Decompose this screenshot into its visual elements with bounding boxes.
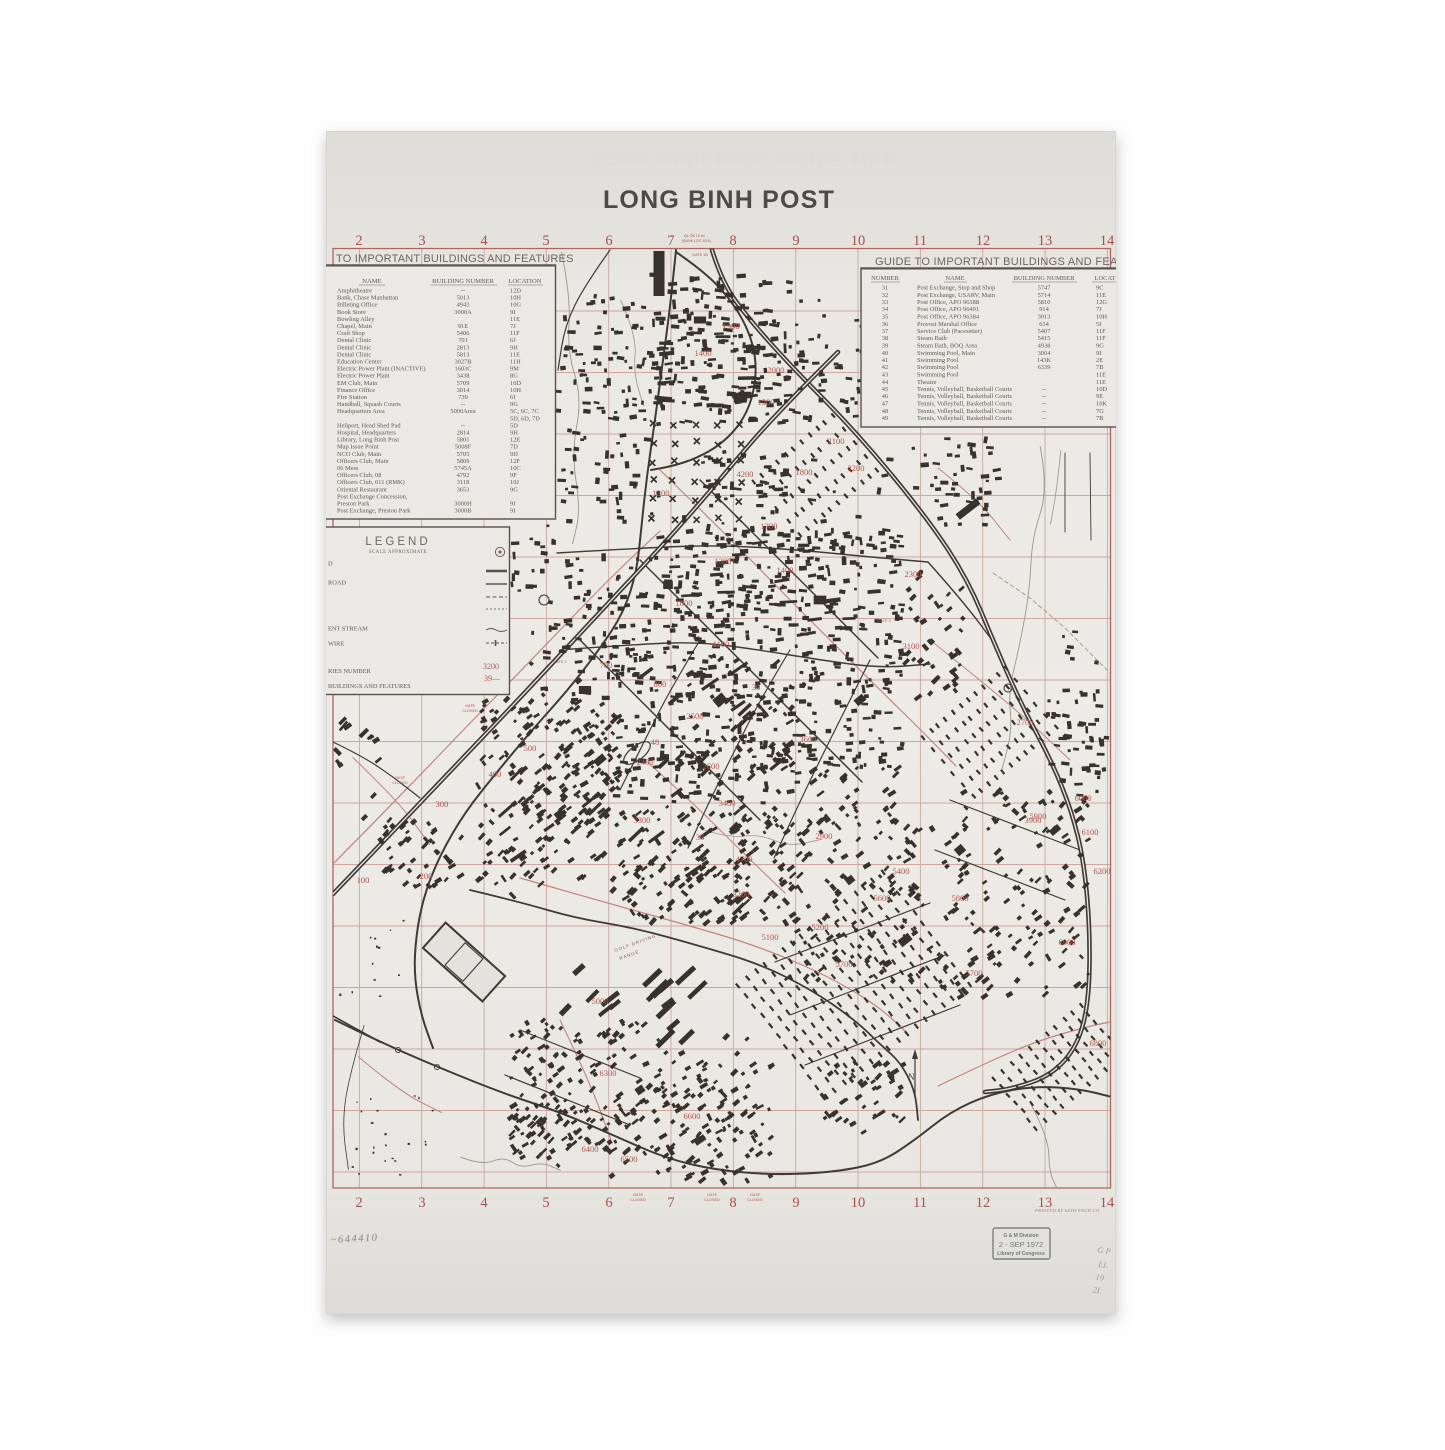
svg-text:11E: 11E	[1096, 379, 1106, 386]
svg-text:34: 34	[882, 306, 889, 313]
svg-text:PRINTED BY 66TH ENGR CO: PRINTED BY 66TH ENGR CO	[1034, 1208, 1100, 1213]
svg-text:GATE: GATE	[395, 776, 406, 780]
svg-text:45: 45	[882, 386, 888, 393]
svg-text:10H: 10H	[1096, 314, 1107, 321]
svg-text:TO IMPORTANT BUILDINGS AND FEA: TO IMPORTANT BUILDINGS AND FEATURES	[336, 253, 574, 265]
svg-text:11: 11	[913, 233, 927, 249]
svg-text:8G: 8G	[510, 373, 518, 380]
svg-text:1603C: 1603C	[454, 366, 471, 373]
svg-text:1400: 1400	[777, 565, 794, 575]
svg-text:(BUNK LOC 63 A): (BUNK LOC 63 A)	[682, 239, 711, 243]
svg-text:9: 9	[792, 1195, 799, 1211]
svg-text:Tennis, Volleyball, Basketball: Tennis, Volleyball, Basketball Courts	[917, 386, 1013, 393]
svg-text:RIES NUMBER: RIES NUMBER	[328, 668, 372, 675]
svg-text:SCALE APPROXIMATE: SCALE APPROXIMATE	[369, 550, 427, 555]
svg-text:06 Mess: 06 Mess	[337, 465, 359, 472]
svg-text:GUIDE TO IMPORTANT BUILDINGS A: GUIDE TO IMPORTANT BUILDINGS AND FEATURE…	[875, 256, 1156, 268]
svg-text:Electric Power Plant: Electric Power Plant	[337, 373, 390, 380]
svg-text:LOCATION: LOCATION	[509, 278, 542, 285]
svg-text:BUILDINGS AND FEATURES: BUILDINGS AND FEATURES	[328, 683, 411, 690]
svg-text:--: --	[1042, 393, 1046, 400]
svg-text:--: --	[1042, 386, 1046, 393]
svg-text:42: 42	[882, 364, 888, 371]
svg-text:5813: 5813	[457, 351, 470, 358]
svg-text:Dental Clinic: Dental Clinic	[337, 337, 371, 344]
svg-text:5100: 5100	[762, 932, 779, 942]
svg-text:6: 6	[605, 233, 612, 249]
svg-text:4: 4	[480, 1195, 488, 1211]
svg-text:634: 634	[1039, 321, 1049, 328]
svg-text:5415: 5415	[1038, 335, 1051, 342]
svg-text:Post Exchange, USARV, Main: Post Exchange, USARV, Main	[917, 292, 996, 299]
svg-text:LOCAT: LOCAT	[1095, 275, 1116, 282]
svg-text:3000H: 3000H	[454, 501, 472, 508]
svg-text:2813: 2813	[457, 344, 470, 351]
svg-text:BUILDING NUMBER: BUILDING NUMBER	[1014, 275, 1076, 282]
svg-text:Map Issue Point: Map Issue Point	[337, 444, 379, 451]
svg-text:Officers Club, 08: Officers Club, 08	[337, 472, 381, 479]
svg-text:33: 33	[882, 299, 888, 306]
svg-text:7J: 7J	[1096, 306, 1102, 313]
svg-text:2E: 2E	[1096, 357, 1103, 364]
svg-text:9: 9	[792, 233, 799, 249]
svg-text:2400: 2400	[637, 757, 654, 767]
svg-text:Officers Club, Main: Officers Club, Main	[337, 458, 389, 465]
svg-text:5407: 5407	[1038, 328, 1052, 335]
svg-text:GATE: GATE	[633, 1193, 644, 1197]
svg-text:4938: 4938	[1038, 343, 1051, 350]
svg-text:4200: 4200	[737, 469, 754, 479]
svg-text:10D: 10D	[510, 380, 521, 387]
svg-text:2300: 2300	[905, 569, 922, 579]
svg-text:3004: 3004	[1038, 350, 1052, 357]
svg-text:2500: 2500	[687, 711, 704, 721]
svg-text:13: 13	[1038, 233, 1053, 249]
svg-text:36: 36	[882, 321, 888, 328]
svg-text:3200: 3200	[733, 889, 750, 899]
svg-text:8: 8	[729, 1195, 736, 1211]
svg-text:44: 44	[882, 379, 889, 386]
svg-text:3600: 3600	[800, 734, 817, 744]
svg-text:6300: 6300	[600, 1068, 617, 1078]
svg-text:GATE: GATE	[750, 1193, 761, 1197]
svg-text:6339: 6339	[1038, 364, 1051, 371]
svg-text:3027B: 3027B	[454, 359, 471, 366]
svg-text:40: 40	[882, 350, 888, 357]
svg-text:9D: 9D	[510, 451, 518, 458]
svg-text:2200: 2200	[848, 463, 865, 473]
svg-text:1000: 1000	[676, 598, 693, 608]
svg-text:2000: 2000	[768, 365, 785, 375]
svg-text:Tennis, Volleyball, Basketball: Tennis, Volleyball, Basketball Courts	[917, 415, 1013, 422]
svg-text:3014: 3014	[457, 387, 471, 394]
svg-text:38: 38	[882, 335, 888, 342]
svg-text:2700: 2700	[1017, 717, 1034, 727]
svg-text:QL OK 10 mi: QL OK 10 mi	[684, 234, 705, 238]
svg-text:11F: 11F	[1096, 335, 1106, 342]
svg-text:4792: 4792	[457, 472, 470, 479]
svg-text:5800: 5800	[952, 893, 969, 903]
svg-text:Electric Power Plant (INACTIVE: Electric Power Plant (INACTIVE)	[337, 366, 426, 373]
svg-text:Bank, Chase Manhattan: Bank, Chase Manhattan	[337, 295, 399, 302]
svg-text:9I: 9I	[510, 501, 515, 508]
svg-text:Theatre: Theatre	[917, 379, 937, 386]
svg-text:9M: 9M	[510, 366, 519, 373]
svg-text:6J: 6J	[510, 337, 516, 344]
svg-text:31: 31	[882, 285, 888, 292]
svg-text:9H: 9H	[510, 344, 518, 351]
svg-text:9I: 9I	[510, 508, 515, 515]
svg-text:Billeting Office: Billeting Office	[337, 302, 377, 309]
svg-text:5714: 5714	[1038, 292, 1052, 299]
svg-text:143K: 143K	[1037, 357, 1052, 364]
svg-text:7B: 7B	[1096, 415, 1103, 422]
svg-text:BUILDING NUMBER: BUILDING NUMBER	[432, 278, 494, 285]
svg-text:CLOSED: CLOSED	[630, 1198, 646, 1202]
svg-text:5700: 5700	[966, 968, 983, 978]
svg-text:2L: 2L	[1092, 1284, 1103, 1295]
svg-text:Post Exchange, Stop and Shop: Post Exchange, Stop and Shop	[917, 285, 995, 292]
svg-text:NCO Club, Main: NCO Club, Main	[337, 451, 382, 458]
svg-text:3013: 3013	[1038, 314, 1051, 321]
svg-text:9G: 9G	[510, 401, 518, 408]
svg-text:1300: 1300	[715, 556, 732, 566]
svg-text:EM Club, Main: EM Club, Main	[337, 380, 378, 387]
svg-text:11H: 11H	[510, 359, 521, 366]
svg-text:14: 14	[1100, 233, 1115, 249]
svg-text:Service Club (Pacesetter): Service Club (Pacesetter)	[917, 328, 982, 335]
svg-text:2814: 2814	[457, 430, 471, 437]
svg-text:Amphitheatre: Amphitheatre	[337, 288, 372, 295]
svg-text:6400: 6400	[582, 1144, 599, 1154]
svg-text:6I: 6I	[510, 394, 515, 401]
svg-text:LL: LL	[1097, 1259, 1109, 1270]
svg-text:Swimming Pool: Swimming Pool	[917, 364, 959, 371]
svg-text:11E: 11E	[1096, 372, 1106, 379]
svg-text:1800: 1800	[796, 467, 813, 477]
svg-text:6800: 6800	[1090, 1038, 1107, 1048]
svg-text:3000B: 3000B	[454, 508, 471, 515]
svg-text:5705: 5705	[457, 451, 470, 458]
svg-text:--: --	[461, 288, 465, 295]
svg-text:4: 4	[480, 233, 488, 249]
svg-text:9I: 9I	[1096, 350, 1101, 357]
svg-text:LONG BINH POST GUIDE MAP: LONG BINH POST GUIDE MAP	[593, 153, 898, 170]
svg-text:1100: 1100	[713, 639, 730, 649]
svg-text:5008F: 5008F	[455, 444, 472, 451]
svg-text:Swimming Pool, Main: Swimming Pool, Main	[917, 350, 976, 357]
svg-text:Post Office, APO 96388: Post Office, APO 96388	[917, 299, 979, 306]
svg-text:46: 46	[882, 393, 888, 400]
svg-text:NAME: NAME	[362, 278, 381, 285]
svg-text:3653: 3653	[457, 486, 470, 493]
svg-text:8: 8	[729, 233, 736, 249]
svg-text:ENT STREAM: ENT STREAM	[328, 626, 368, 633]
svg-text:5D: 5D	[510, 422, 518, 429]
svg-text:6: 6	[605, 1195, 612, 1211]
svg-text:Preston Park: Preston Park	[337, 501, 370, 508]
svg-text:10C: 10C	[510, 465, 521, 472]
svg-text:30: 30	[752, 682, 761, 692]
svg-text:2900: 2900	[816, 831, 833, 841]
svg-text:49: 49	[882, 415, 888, 422]
svg-text:Headquarters Area: Headquarters Area	[337, 408, 385, 415]
svg-text:48: 48	[651, 737, 660, 747]
svg-text:Post Office, APO 96491: Post Office, APO 96491	[917, 306, 979, 313]
svg-text:7G: 7G	[1096, 408, 1104, 415]
svg-text:G & M Division: G & M Division	[1003, 1233, 1038, 1239]
svg-text:6100: 6100	[1082, 827, 1099, 837]
svg-text:32: 32	[882, 292, 888, 299]
svg-text:10H: 10H	[510, 295, 521, 302]
svg-text:Tennis, Volleyball, Basketball: Tennis, Volleyball, Basketball Courts	[917, 408, 1013, 415]
svg-text:6000: 6000	[1075, 793, 1092, 803]
svg-text:914: 914	[1039, 306, 1049, 313]
svg-text:5700: 5700	[836, 959, 853, 969]
svg-text:3300: 3300	[634, 815, 651, 825]
svg-text:Craft Shop: Craft Shop	[337, 330, 365, 337]
svg-text:GATE 3: GATE 3	[877, 619, 890, 623]
svg-text:39: 39	[882, 343, 888, 350]
svg-text:12E: 12E	[510, 437, 520, 444]
svg-text:Hospital, Headquarters: Hospital, Headquarters	[337, 430, 396, 437]
svg-text:7J: 7J	[510, 323, 516, 330]
svg-text:G P: G P	[1097, 1245, 1112, 1257]
svg-text:11E: 11E	[510, 351, 520, 358]
svg-text:5: 5	[542, 1195, 549, 1211]
svg-text:NUMBER: NUMBER	[871, 275, 899, 282]
svg-text:Handball, Squash Courts: Handball, Squash Courts	[337, 401, 401, 408]
svg-text:5810: 5810	[1038, 299, 1051, 306]
svg-text:10G: 10G	[510, 302, 521, 309]
svg-text:7: 7	[667, 233, 674, 249]
svg-text:2600: 2600	[703, 761, 720, 771]
svg-text:--: --	[461, 401, 465, 408]
svg-text:9G: 9G	[510, 486, 518, 493]
svg-text:CLOSED: CLOSED	[392, 781, 408, 785]
svg-text:9G: 9G	[1096, 343, 1104, 350]
svg-text:4943: 4943	[457, 302, 470, 309]
svg-text:Swimming Pool: Swimming Pool	[917, 357, 959, 364]
svg-text:6200: 6200	[1094, 866, 1111, 876]
svg-text:7B: 7B	[1096, 364, 1103, 371]
svg-text:300: 300	[436, 799, 449, 809]
svg-text:3: 3	[418, 1195, 425, 1211]
svg-text:6500: 6500	[621, 1154, 638, 1164]
svg-text:5000Area: 5000Area	[450, 408, 475, 415]
svg-text:Oriental Restaurant: Oriental Restaurant	[337, 486, 387, 493]
svg-text:2100: 2100	[828, 436, 845, 446]
svg-text:1400: 1400	[695, 348, 712, 358]
svg-text:10D: 10D	[1096, 386, 1107, 393]
svg-text:1200: 1200	[653, 488, 670, 498]
svg-text:5747: 5747	[1038, 285, 1052, 292]
svg-text:5C, 6C, 7C: 5C, 6C, 7C	[510, 408, 539, 415]
svg-text:37: 37	[882, 328, 889, 335]
svg-text:3438: 3438	[457, 373, 470, 380]
svg-text:Book Store: Book Store	[337, 309, 366, 316]
svg-text:7: 7	[667, 1195, 674, 1211]
svg-text:Steam Bath, BOQ Area: Steam Bath, BOQ Area	[917, 343, 977, 350]
svg-text:3400: 3400	[719, 798, 736, 808]
svg-text:10J: 10J	[510, 479, 519, 486]
svg-text:GATE: GATE	[465, 704, 476, 708]
svg-text:1300: 1300	[761, 521, 778, 531]
svg-text:10: 10	[851, 1195, 866, 1211]
svg-text:3: 3	[418, 233, 425, 249]
svg-text:10: 10	[851, 233, 866, 249]
svg-text:5745A: 5745A	[454, 465, 472, 472]
svg-text:2: 2	[355, 1195, 362, 1211]
svg-text:Chapel, Main: Chapel, Main	[337, 323, 373, 330]
svg-text:100: 100	[357, 875, 370, 885]
svg-text:CLOSED: CLOSED	[747, 1198, 763, 1202]
svg-text:9I: 9I	[510, 309, 515, 316]
svg-text:3118: 3118	[457, 479, 470, 486]
svg-text:12: 12	[976, 233, 991, 249]
svg-text:LONG BINH POST: LONG BINH POST	[603, 186, 835, 214]
svg-text:GATE 1B: GATE 1B	[692, 253, 708, 257]
svg-text:700: 700	[600, 660, 613, 670]
svg-text:--: --	[1042, 408, 1046, 415]
svg-text:GATE: GATE	[707, 1193, 718, 1197]
svg-text:Post Exchange, Preston Park: Post Exchange, Preston Park	[337, 508, 411, 515]
svg-text:5406: 5406	[457, 330, 470, 337]
svg-text:9C: 9C	[1096, 285, 1103, 292]
svg-text:11E: 11E	[510, 316, 520, 323]
svg-text:4700: 4700	[736, 854, 753, 864]
svg-text:Tennis, Volleyball, Basketball: Tennis, Volleyball, Basketball Courts	[917, 393, 1013, 400]
svg-text:Dental Clinic: Dental Clinic	[337, 344, 371, 351]
svg-text:11E: 11E	[1096, 292, 1106, 299]
svg-text:9F: 9F	[510, 472, 517, 479]
svg-text:200: 200	[420, 871, 433, 881]
svg-text:--: --	[461, 422, 465, 429]
svg-text:D: D	[328, 561, 333, 568]
svg-text:2 - SEP 1972: 2 - SEP 1972	[999, 1240, 1043, 1249]
svg-text:48: 48	[882, 408, 888, 415]
svg-text:14: 14	[1100, 1195, 1115, 1211]
svg-text:500: 500	[524, 743, 537, 753]
svg-text:Steam Bath: Steam Bath	[917, 335, 947, 342]
svg-text:91E: 91E	[458, 323, 468, 330]
svg-text:5709: 5709	[457, 380, 470, 387]
svg-text:1900: 1900	[723, 321, 740, 331]
svg-text:12F: 12F	[510, 458, 520, 465]
svg-text:12: 12	[976, 1195, 991, 1211]
svg-text:5801: 5801	[457, 437, 470, 444]
svg-text:39—: 39—	[484, 674, 501, 683]
svg-text:7D: 7D	[510, 444, 518, 451]
svg-text:Library of Congress: Library of Congress	[997, 1251, 1045, 1257]
svg-text:LEGEND: LEGEND	[365, 536, 430, 548]
svg-text:WIRE: WIRE	[328, 641, 344, 648]
svg-text:739: 739	[458, 394, 468, 401]
svg-text:6900: 6900	[1059, 937, 1076, 947]
svg-text:NAME: NAME	[945, 275, 964, 282]
svg-text:Education Center: Education Center	[337, 359, 382, 366]
svg-text:--: --	[1042, 401, 1046, 408]
svg-text:ROAD: ROAD	[328, 580, 346, 587]
svg-text:35: 35	[882, 314, 888, 321]
svg-text:Bowling Alley: Bowling Alley	[337, 316, 375, 323]
svg-text:Heliport, Head Shed Pad: Heliport, Head Shed Pad	[337, 422, 401, 429]
svg-text:Finance Office: Finance Office	[337, 387, 375, 394]
svg-text:5400: 5400	[893, 866, 910, 876]
svg-text:6600: 6600	[684, 1111, 701, 1121]
svg-text:12D: 12D	[510, 288, 521, 295]
svg-text:10K: 10K	[1096, 401, 1107, 408]
svg-text:43: 43	[882, 372, 888, 379]
svg-text:3000A: 3000A	[454, 309, 472, 316]
svg-text:Post Office, APO 96384: Post Office, APO 96384	[917, 314, 980, 321]
svg-text:400: 400	[489, 769, 502, 779]
svg-text:9H: 9H	[510, 430, 518, 437]
svg-text:Post Exchange Concession,: Post Exchange Concession,	[337, 493, 408, 500]
svg-text:3200: 3200	[483, 662, 499, 671]
svg-text:CLOSED: CLOSED	[704, 1198, 720, 1202]
svg-text:Officers Club, 011 (RMK): Officers Club, 011 (RMK)	[337, 479, 405, 486]
svg-text:800: 800	[654, 679, 667, 689]
svg-text:701: 701	[458, 337, 468, 344]
svg-text:2: 2	[355, 233, 362, 249]
svg-text:Dental Clinic: Dental Clinic	[337, 351, 371, 358]
svg-text:CLOSED: CLOSED	[462, 709, 478, 713]
svg-text:10H: 10H	[510, 387, 521, 394]
svg-text:5600: 5600	[874, 893, 891, 903]
svg-text:GATE 2: GATE 2	[553, 660, 566, 664]
svg-text:Tennis, Volleyball, Basketball: Tennis, Volleyball, Basketball Courts	[917, 401, 1013, 408]
svg-text:9E: 9E	[1096, 393, 1103, 400]
svg-text:5000: 5000	[592, 996, 609, 1006]
svg-text:Library, Long Binh Post: Library, Long Binh Post	[337, 437, 399, 444]
svg-text:--: --	[1042, 415, 1046, 422]
svg-text:Provost Marshal Office: Provost Marshal Office	[917, 321, 977, 328]
svg-text:3100: 3100	[903, 641, 920, 651]
svg-text:5200: 5200	[812, 922, 829, 932]
svg-text:Swimming Pool: Swimming Pool	[917, 372, 959, 379]
svg-text:47: 47	[882, 401, 889, 408]
svg-text:41: 41	[882, 357, 888, 364]
svg-text:38: 38	[696, 832, 705, 842]
svg-text:N: N	[908, 1072, 915, 1082]
svg-text:11F: 11F	[1096, 328, 1106, 335]
svg-text:12G: 12G	[1096, 299, 1107, 306]
svg-text:5I: 5I	[1096, 321, 1101, 328]
svg-text:5900: 5900	[1030, 811, 1047, 821]
svg-text:1500: 1500	[758, 397, 775, 407]
svg-text:Fire Station: Fire Station	[337, 394, 368, 401]
svg-text:5809: 5809	[457, 458, 470, 465]
svg-text:5: 5	[542, 233, 549, 249]
svg-text:5013: 5013	[457, 295, 470, 302]
svg-text:11F: 11F	[510, 330, 520, 337]
svg-text:11: 11	[913, 1195, 927, 1211]
svg-text:5D, 6D, 7D: 5D, 6D, 7D	[510, 415, 540, 422]
